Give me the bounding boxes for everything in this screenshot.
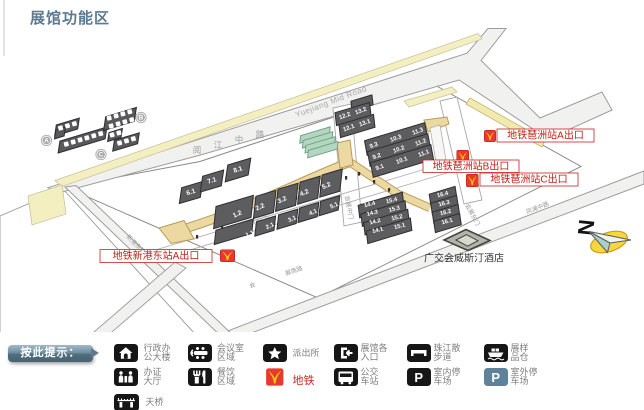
svg-text:地铁琶洲站A出口: 地铁琶洲站A出口 <box>507 129 584 142</box>
svg-text:地铁琶洲站B出口: 地铁琶洲站B出口 <box>433 159 510 172</box>
svg-text:江: 江 <box>214 140 223 150</box>
svg-text:广交会威斯汀酒店: 广交会威斯汀酒店 <box>424 252 504 265</box>
svg-text:A: A <box>44 138 49 145</box>
svg-text:中: 中 <box>235 135 244 145</box>
svg-text:地铁新港东站A出口: 地铁新港东站A出口 <box>113 249 200 262</box>
svg-text:路: 路 <box>256 129 265 139</box>
svg-text:P: P <box>414 370 423 385</box>
svg-text:阅: 阅 <box>193 145 202 155</box>
svg-text:P: P <box>491 370 500 385</box>
svg-text:B: B <box>139 115 144 122</box>
svg-text:C: C <box>99 152 104 159</box>
svg-text:地铁琶洲站C出口: 地铁琶洲站C出口 <box>490 173 567 186</box>
